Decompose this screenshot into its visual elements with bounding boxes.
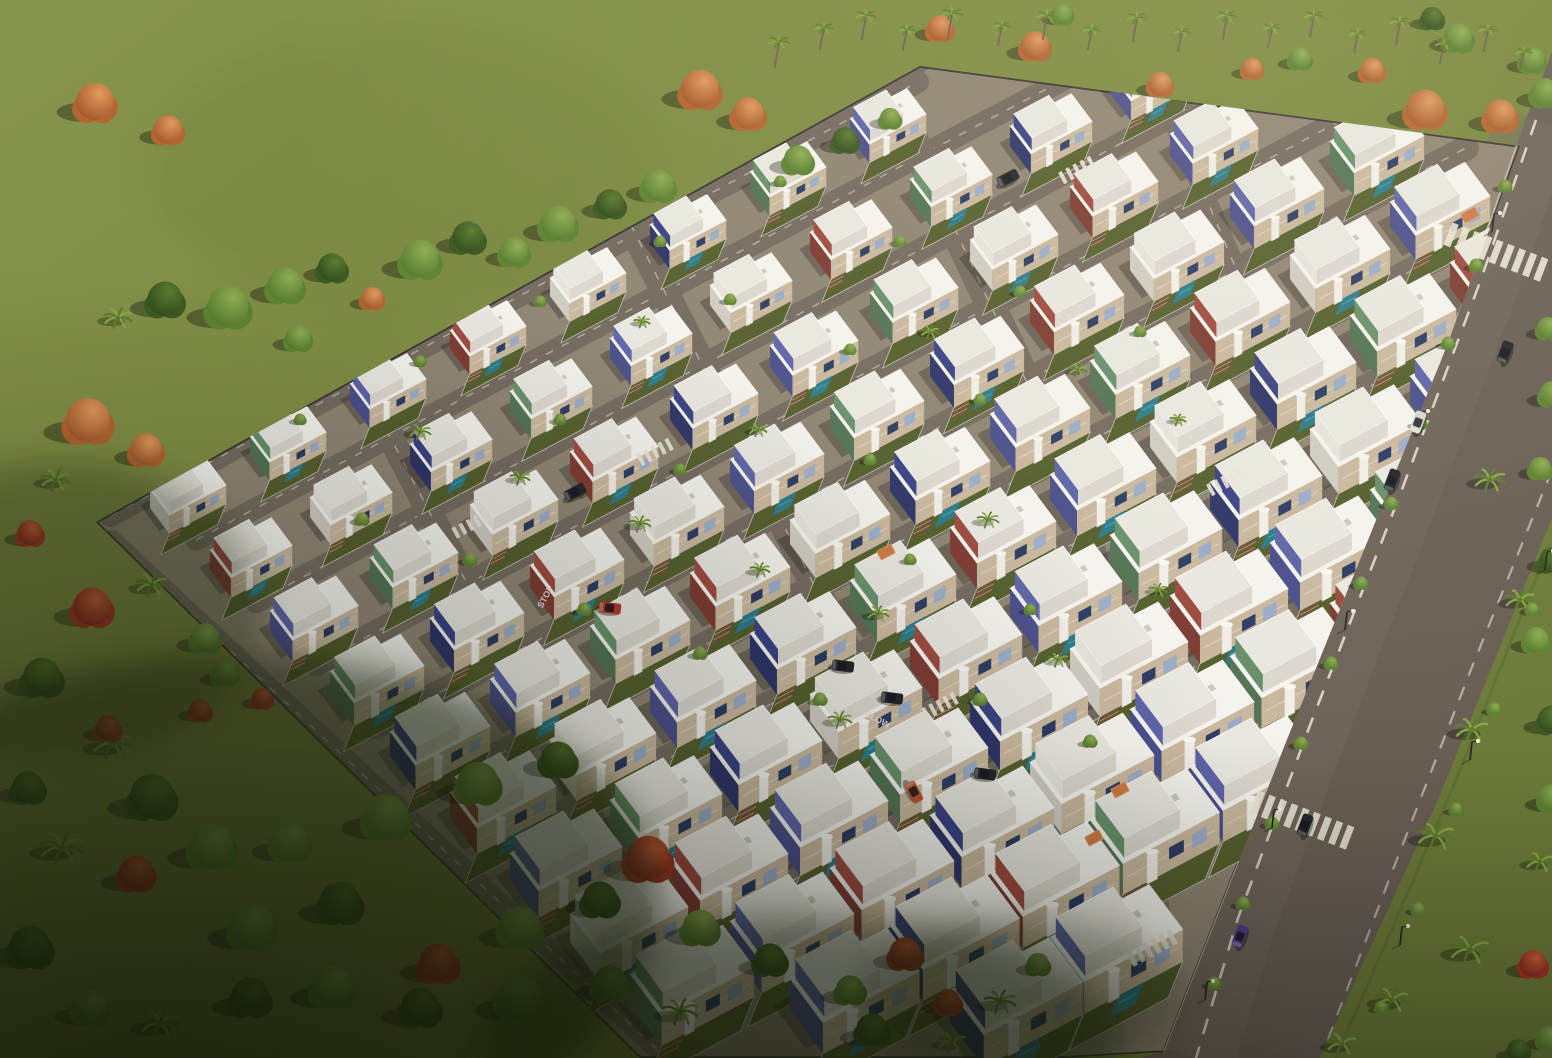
scene-canvas: STOPSLOW	[0, 0, 1552, 1058]
overlays	[0, 0, 1552, 1058]
bottom-shade-overlay	[0, 0, 1552, 1058]
aerial-community-render: STOPSLOW	[0, 0, 1552, 1058]
